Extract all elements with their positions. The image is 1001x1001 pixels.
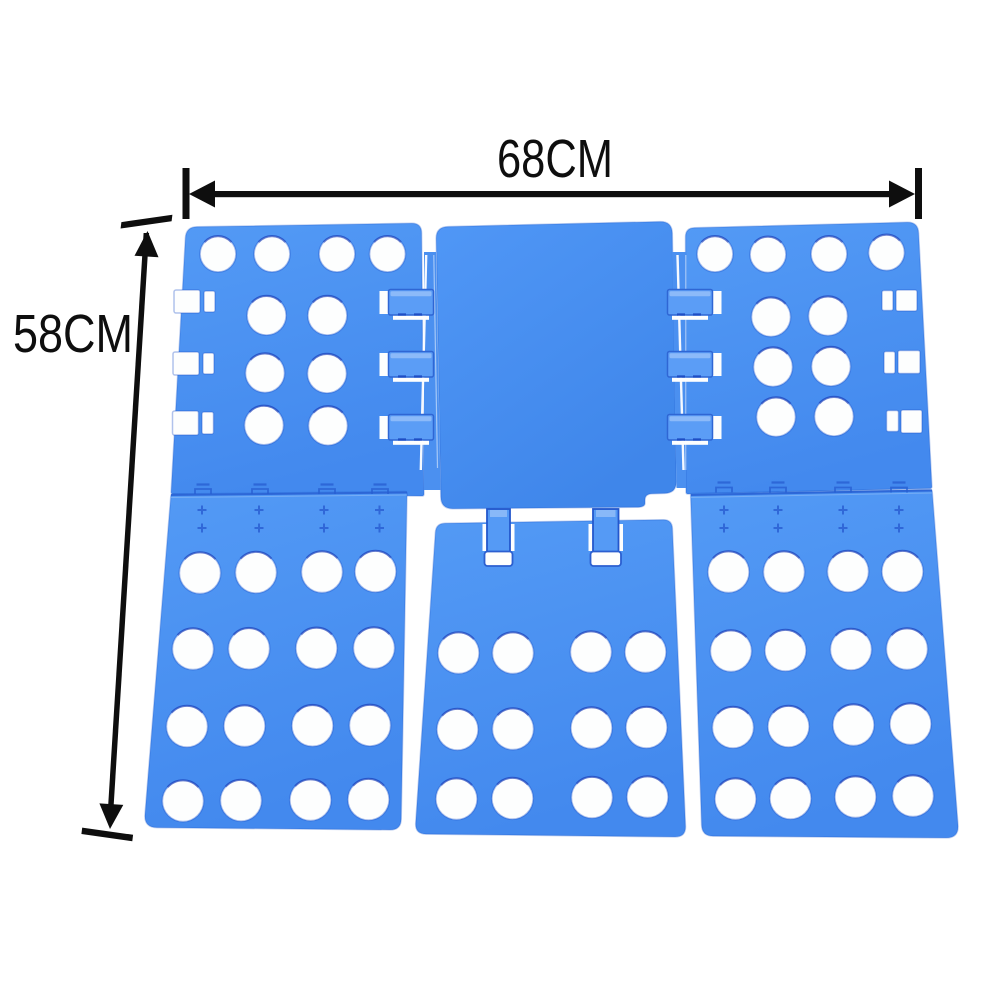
svg-text:58CM: 58CM (13, 304, 133, 364)
svg-text:68CM: 68CM (497, 129, 613, 189)
